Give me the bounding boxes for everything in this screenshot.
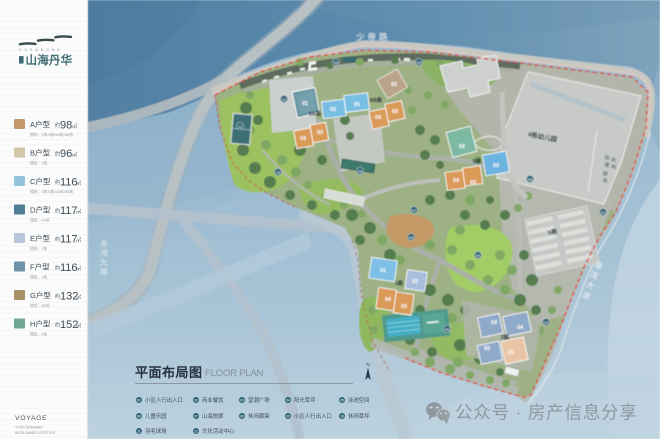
svg-text:03: 03 [317, 130, 323, 136]
svg-text:D户型: D户型 [30, 205, 51, 215]
svg-text:01: 01 [137, 398, 141, 402]
svg-text:FLOOR PLAN: FLOOR PLAN [205, 368, 264, 379]
svg-text:06: 06 [409, 235, 414, 240]
svg-text:06: 06 [137, 414, 141, 418]
svg-text:G户型: G户型 [30, 290, 51, 300]
svg-text:116: 116 [60, 177, 78, 189]
svg-text:商业餐饮: 商业餐饮 [202, 396, 224, 404]
svg-text:03: 03 [240, 398, 244, 402]
svg-text:A户型: A户型 [30, 119, 51, 129]
svg-text:羽毛球场: 羽毛球场 [145, 427, 167, 435]
svg-text:02: 02 [544, 320, 549, 325]
svg-text:08: 08 [358, 169, 363, 174]
svg-text:117: 117 [60, 205, 78, 217]
svg-text:05: 05 [445, 327, 450, 332]
svg-text:㎡: ㎡ [72, 152, 77, 159]
svg-text:02: 02 [412, 279, 418, 285]
svg-text:山海悦廊: 山海悦廊 [202, 412, 224, 420]
svg-text:楼栋：1栋/5栋/6A栋/6B栋: 楼栋：1栋/5栋/6A栋/6B栋 [30, 132, 73, 137]
svg-text:小区人行出入口: 小区人行出入口 [145, 396, 183, 404]
svg-text:12: 12 [282, 97, 287, 102]
svg-text:H户型: H户型 [30, 319, 51, 329]
svg-text:03: 03 [470, 180, 476, 186]
svg-text:05: 05 [340, 398, 344, 402]
svg-text:儿童乐园: 儿童乐园 [145, 412, 167, 420]
svg-text:湾: 湾 [100, 248, 108, 258]
svg-text:117: 117 [60, 234, 78, 246]
svg-text:04: 04 [517, 325, 524, 331]
svg-text:九: 九 [100, 258, 108, 267]
svg-text:01: 01 [380, 268, 386, 274]
svg-text:B户型: B户型 [30, 148, 51, 158]
svg-text:04: 04 [300, 136, 307, 142]
svg-text:09: 09 [286, 414, 290, 418]
svg-text:5栋: 5栋 [473, 157, 482, 165]
svg-text:VOYAGE: VOYAGE [15, 415, 47, 422]
svg-text:泳池空间: 泳池空间 [348, 396, 370, 404]
svg-text:07: 07 [194, 414, 198, 418]
svg-text:㎡: ㎡ [76, 180, 81, 187]
svg-text:01: 01 [601, 210, 606, 215]
svg-text:03: 03 [493, 163, 499, 169]
svg-text:01: 01 [508, 350, 514, 356]
svg-text:02: 02 [330, 107, 336, 113]
svg-text:02: 02 [194, 398, 198, 402]
svg-text:山海丹华: 山海丹华 [26, 53, 73, 67]
svg-text:小区人行出入口: 小区人行出入口 [294, 412, 332, 420]
svg-text:04: 04 [375, 115, 382, 121]
svg-text:阳光草坪: 阳光草坪 [294, 396, 316, 404]
svg-text:96: 96 [60, 148, 72, 160]
svg-text:04: 04 [286, 398, 290, 402]
svg-text:116: 116 [60, 262, 78, 274]
svg-text:楼栋：1栋: 楼栋：1栋 [30, 246, 48, 251]
svg-text:少帝路: 少帝路 [356, 32, 391, 42]
svg-text:N: N [366, 362, 369, 367]
svg-text:E户型: E户型 [30, 233, 51, 243]
svg-text:楼栋：6B栋: 楼栋：6B栋 [30, 303, 50, 308]
svg-text:04: 04 [385, 297, 392, 303]
svg-text:09: 09 [334, 60, 339, 65]
svg-text:10: 10 [340, 414, 344, 418]
svg-text:2栋: 2栋 [501, 333, 510, 341]
svg-text:楼栋：2栋: 楼栋：2栋 [30, 161, 48, 166]
svg-text:03: 03 [491, 320, 497, 326]
svg-text:6A栋: 6A栋 [309, 110, 322, 118]
svg-text:02: 02 [459, 144, 465, 150]
svg-text:㎡: ㎡ [76, 323, 81, 330]
svg-text:㎡: ㎡ [72, 123, 77, 130]
svg-text:楼栋：5栋: 楼栋：5栋 [30, 332, 48, 337]
svg-text:楼栋：6A栋: 楼栋：6A栋 [30, 218, 50, 223]
svg-text:文化活动中心: 文化活动中心 [202, 427, 235, 435]
svg-text:04: 04 [453, 178, 460, 184]
svg-text:OCEANONE: OCEANONE [19, 48, 63, 52]
svg-text:望潮广场: 望潮广场 [248, 396, 270, 404]
svg-text:6B栋: 6B栋 [370, 96, 383, 104]
svg-text:WORLDWIDE LIFESTYLE: WORLDWIDE LIFESTYLE [15, 431, 56, 435]
svg-text:07: 07 [412, 208, 417, 213]
svg-text:休闲草坪: 休闲草坪 [348, 412, 370, 420]
svg-text:路: 路 [100, 267, 108, 277]
svg-text:公众号 · 房产信息分享: 公众号 · 房产信息分享 [455, 403, 638, 423]
svg-text:1栋: 1栋 [395, 279, 404, 287]
svg-text:02: 02 [391, 82, 397, 88]
svg-text:㎡: ㎡ [76, 237, 81, 244]
svg-text:02: 02 [484, 346, 490, 352]
svg-text:㎡: ㎡ [76, 266, 81, 273]
svg-text:03: 03 [392, 109, 398, 115]
svg-text:平面布局图: 平面布局图 [135, 365, 203, 380]
svg-text:赤: 赤 [100, 239, 108, 248]
svg-text:休闲廊架: 休闲廊架 [248, 412, 270, 420]
svg-text:㎡: ㎡ [76, 294, 81, 301]
svg-text:YOUR DREAMED: YOUR DREAMED [15, 426, 43, 430]
svg-text:98: 98 [60, 120, 72, 132]
svg-text:10: 10 [276, 170, 281, 175]
svg-text:03: 03 [401, 304, 407, 310]
svg-text:楼栋：2栋: 楼栋：2栋 [30, 275, 48, 280]
svg-text:㎡: ㎡ [76, 209, 81, 216]
svg-text:08: 08 [240, 414, 244, 418]
svg-text:11: 11 [137, 429, 141, 433]
svg-text:01: 01 [354, 102, 360, 108]
svg-text:05: 05 [528, 177, 533, 182]
svg-text:楼栋：1栋/5栋/6A栋/6B栋: 楼栋：1栋/5栋/6A栋/6B栋 [30, 189, 73, 194]
svg-text:01: 01 [302, 101, 308, 107]
svg-text:04: 04 [476, 253, 481, 258]
svg-text:03: 03 [417, 60, 422, 65]
svg-text:12: 12 [194, 429, 198, 433]
svg-text:F户型: F户型 [30, 262, 50, 272]
svg-text:C户型: C户型 [30, 176, 51, 186]
